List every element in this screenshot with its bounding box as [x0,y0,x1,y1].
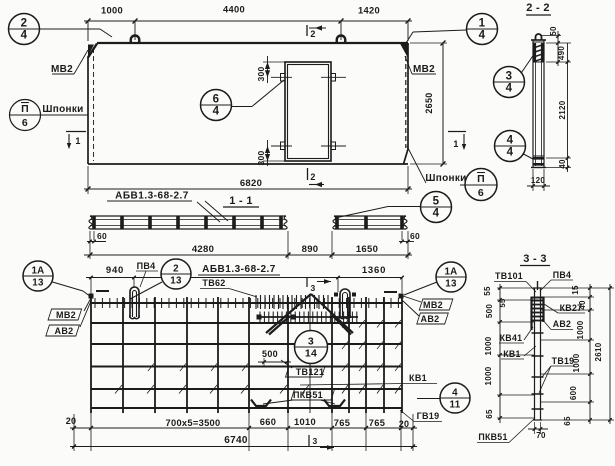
svg-text:765: 765 [334,418,350,428]
svg-text:3: 3 [310,283,315,293]
svg-text:490: 490 [557,46,566,60]
svg-text:4: 4 [452,388,458,399]
svg-text:КВ1: КВ1 [409,373,427,383]
svg-text:600: 600 [569,386,578,400]
svg-text:6740: 6740 [224,435,248,446]
svg-text:4: 4 [479,30,486,42]
svg-text:АВ2: АВ2 [55,326,74,336]
svg-text:55: 55 [498,299,507,308]
svg-text:4280: 4280 [192,244,214,255]
svg-text:АВ2: АВ2 [421,314,440,324]
svg-text:МВ2: МВ2 [413,64,435,75]
svg-text:П: П [477,173,485,185]
svg-text:КВ41: КВ41 [500,333,523,343]
svg-text:ТВ62: ТВ62 [202,278,225,288]
svg-text:6: 6 [478,187,484,199]
svg-text:1000: 1000 [101,6,123,16]
svg-text:700х5=3500: 700х5=3500 [166,418,221,428]
svg-text:14: 14 [305,348,317,360]
svg-text:АВ2: АВ2 [553,319,572,329]
svg-text:500: 500 [485,304,494,318]
svg-text:13: 13 [445,279,457,290]
svg-text:1360: 1360 [362,265,386,276]
svg-text:3 - 3: 3 - 3 [523,253,547,265]
svg-text:ПВ4: ПВ4 [553,270,571,280]
svg-text:55: 55 [483,286,492,296]
svg-text:40: 40 [558,159,567,169]
svg-text:1000: 1000 [576,320,585,339]
svg-text:15: 15 [571,285,580,295]
svg-text:1: 1 [75,136,80,146]
svg-text:МВ2: МВ2 [56,310,76,320]
svg-text:4: 4 [433,208,440,220]
svg-text:1010: 1010 [294,417,316,427]
svg-text:2: 2 [310,172,315,182]
svg-text:ГВ19: ГВ19 [417,411,440,421]
svg-text:2610: 2610 [594,342,603,361]
svg-text:1: 1 [479,18,486,30]
svg-text:Шпонки: Шпонки [42,104,83,115]
svg-text:2: 2 [173,264,179,275]
svg-text:2: 2 [21,18,28,30]
svg-text:4: 4 [507,135,514,147]
svg-text:65: 65 [563,416,572,426]
svg-text:ПВ4: ПВ4 [137,261,156,271]
svg-text:1420: 1420 [358,6,380,16]
svg-text:300: 300 [256,150,266,165]
svg-text:890: 890 [302,244,319,255]
svg-text:ТВ101: ТВ101 [495,271,523,281]
svg-text:3: 3 [506,71,513,83]
svg-text:ТВ19: ТВ19 [552,356,575,366]
svg-text:6820: 6820 [240,178,262,189]
svg-text:ПКВ51: ПКВ51 [478,432,507,442]
svg-text:500: 500 [262,349,278,359]
svg-text:13: 13 [32,278,44,289]
svg-text:1000: 1000 [484,336,493,355]
svg-text:3: 3 [308,336,314,348]
svg-text:1 - 1: 1 - 1 [229,195,253,207]
svg-text:4400: 4400 [223,5,245,15]
svg-text:60: 60 [97,231,107,241]
svg-text:П: П [21,103,29,115]
svg-text:МВ2: МВ2 [51,64,73,75]
svg-text:120: 120 [531,176,545,185]
svg-text:4: 4 [506,83,513,95]
svg-text:4: 4 [507,147,514,159]
svg-text:4: 4 [21,30,28,42]
svg-text:6: 6 [22,117,28,129]
svg-text:65: 65 [485,409,494,419]
svg-text:1А: 1А [31,266,44,277]
svg-text:1000: 1000 [572,353,581,372]
svg-text:5: 5 [433,196,440,208]
svg-text:2 - 2: 2 - 2 [526,2,550,14]
svg-text:60: 60 [410,231,420,241]
svg-text:11: 11 [450,400,461,411]
svg-text:ТВ121: ТВ121 [296,367,325,377]
svg-text:2120: 2120 [558,100,567,119]
svg-text:КВ1: КВ1 [503,349,521,359]
svg-text:АБВ1.3-68-2.7: АБВ1.3-68-2.7 [115,191,189,202]
svg-text:20: 20 [66,416,77,426]
svg-text:ПКВ51: ПКВ51 [293,390,323,400]
svg-text:765: 765 [369,418,385,428]
svg-text:20: 20 [399,419,410,429]
svg-text:2: 2 [310,29,315,39]
svg-text:1000: 1000 [484,366,493,385]
svg-text:6: 6 [213,94,220,106]
svg-text:1: 1 [453,139,458,149]
svg-text:Шпонки: Шпонки [425,173,466,184]
svg-text:МВ2: МВ2 [423,300,443,310]
svg-text:1650: 1650 [356,244,378,255]
svg-text:2650: 2650 [424,92,434,113]
svg-text:АБВ1.3-68-2.7: АБВ1.3-68-2.7 [202,264,276,275]
svg-text:940: 940 [106,265,124,276]
svg-text:1А: 1А [444,267,457,278]
svg-text:70: 70 [536,431,546,440]
svg-text:3: 3 [312,436,317,446]
svg-text:50: 50 [549,26,558,36]
svg-text:660: 660 [260,417,276,427]
svg-text:300: 300 [256,66,266,81]
svg-text:13: 13 [170,276,182,287]
svg-text:4: 4 [213,106,220,118]
svg-text:40: 40 [578,300,587,310]
